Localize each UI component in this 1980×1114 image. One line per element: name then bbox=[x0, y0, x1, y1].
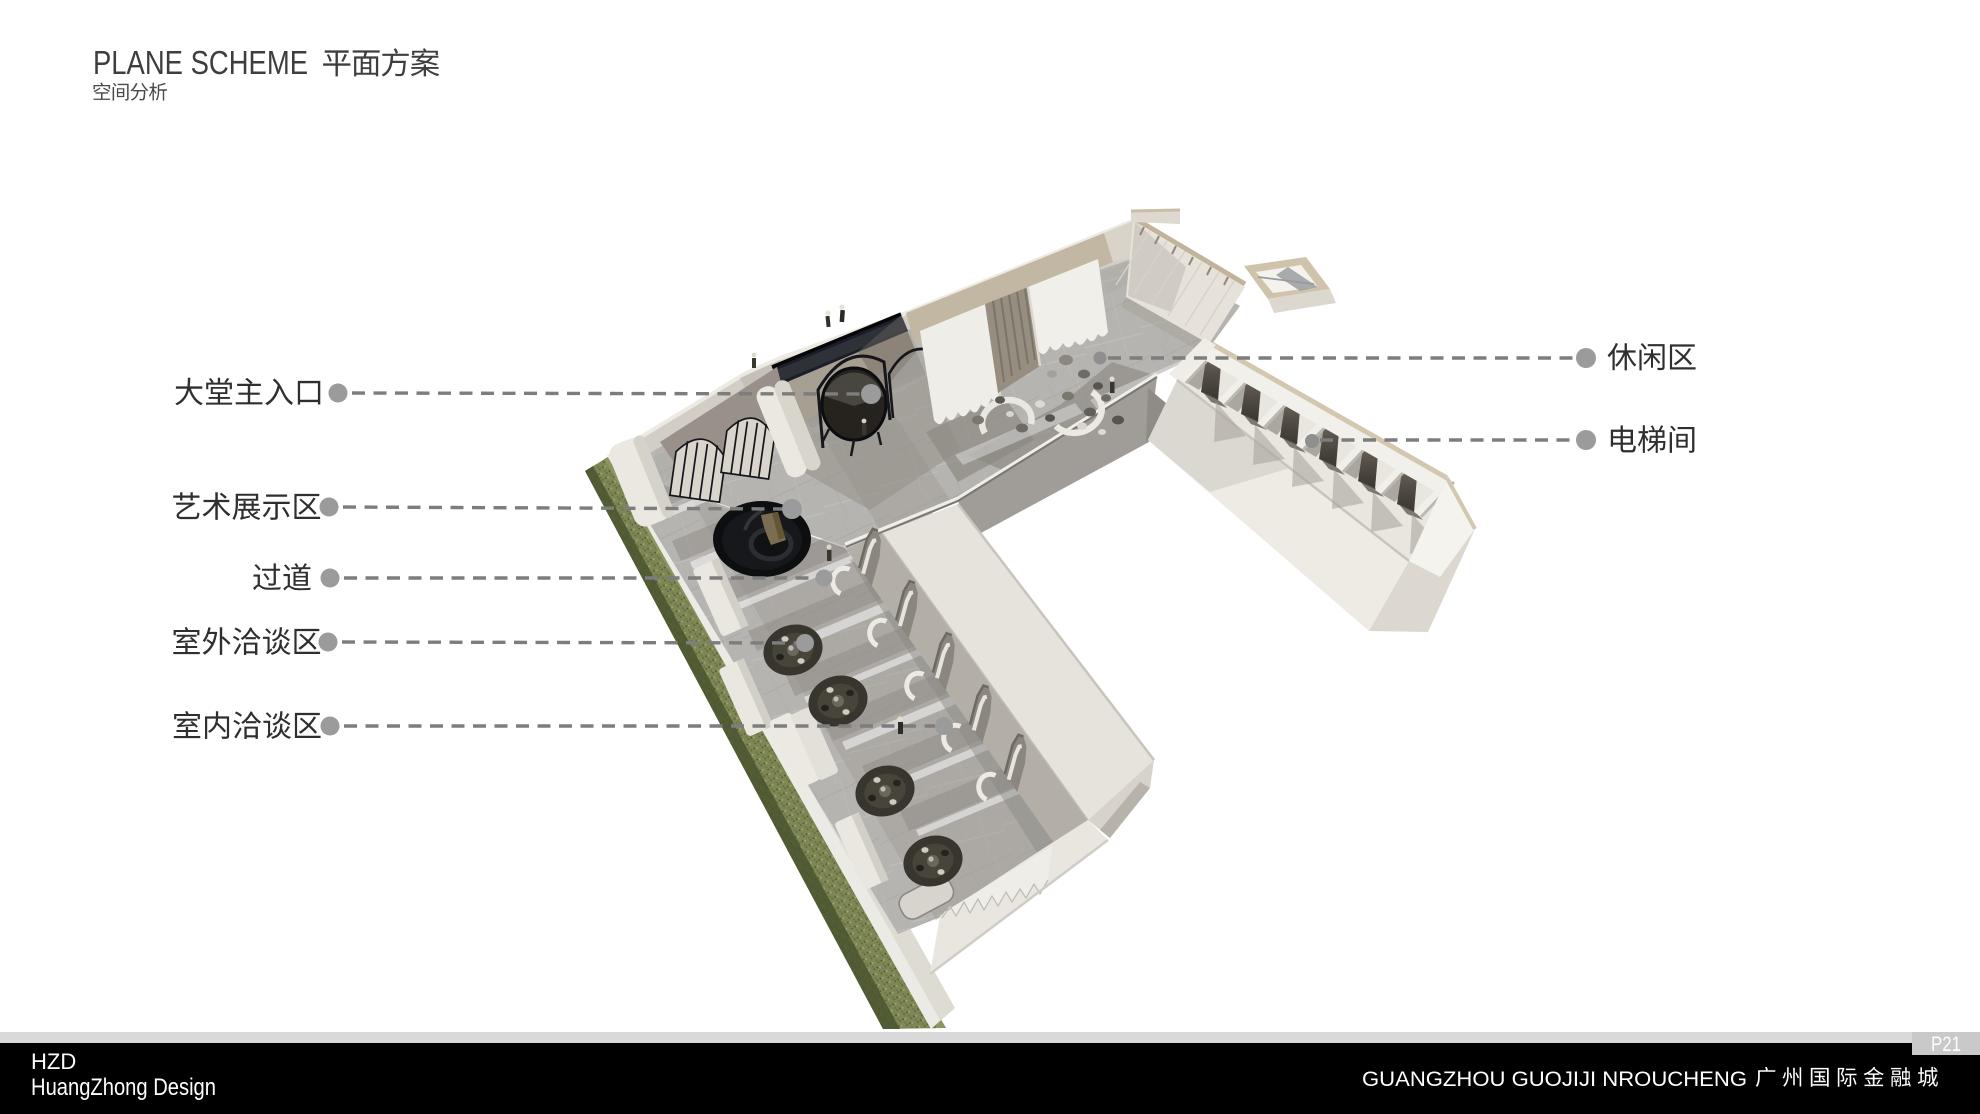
svg-text:PLANE SCHEME: PLANE SCHEME bbox=[93, 45, 308, 82]
svg-text:HuangZhong Design: HuangZhong Design bbox=[31, 1074, 216, 1101]
svg-text:P21: P21 bbox=[1931, 1033, 1961, 1056]
svg-text:HZD: HZD bbox=[31, 1049, 76, 1074]
svg-text:GUANGZHOU GUOJIJI NROUCHENG: GUANGZHOU GUOJIJI NROUCHENG bbox=[1362, 1067, 1747, 1091]
